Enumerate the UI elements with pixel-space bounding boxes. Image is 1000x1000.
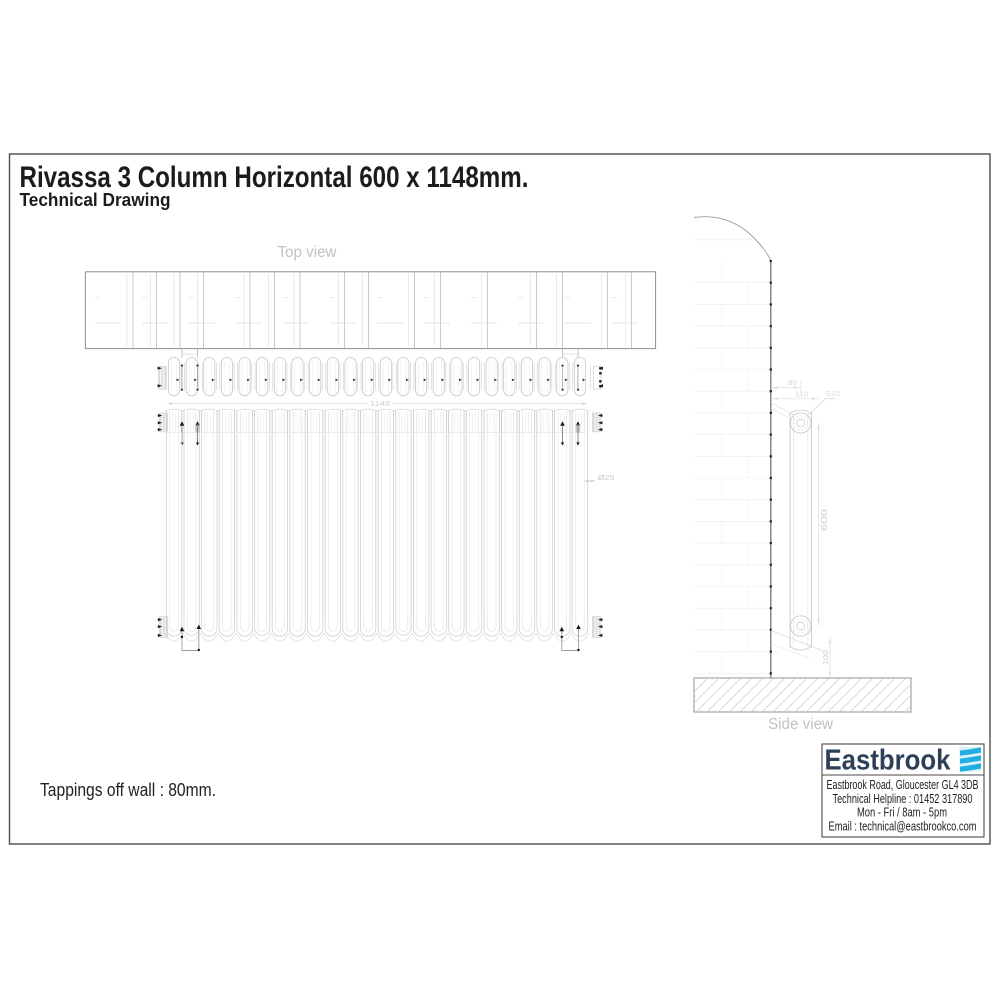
svg-text:Ø25: Ø25 [598, 473, 615, 482]
svg-text:100: 100 [823, 650, 830, 665]
svg-text:Tappings off wall : 80mm.: Tappings off wall : 80mm. [40, 779, 216, 800]
svg-text:Side view: Side view [768, 716, 834, 733]
svg-text:Mon - Fri / 8am - 5pm: Mon - Fri / 8am - 5pm [857, 806, 947, 820]
svg-text:Technical Helpline : 01452 317: Technical Helpline : 01452 317890 [833, 792, 973, 806]
svg-text:Eastbrook Road, Gloucester GL4: Eastbrook Road, Gloucester GL4 3DB [827, 778, 979, 792]
svg-text:110: 110 [795, 391, 808, 398]
svg-text:G1/2: G1/2 [826, 391, 840, 398]
svg-text:Top view: Top view [278, 244, 338, 261]
svg-text:80: 80 [788, 380, 797, 387]
svg-text:1148: 1148 [370, 399, 390, 408]
svg-text:Eastbrook: Eastbrook [825, 745, 952, 777]
svg-text:600: 600 [820, 508, 829, 531]
svg-text:Email : technical@eastbrookco.: Email : technical@eastbrookco.com [829, 820, 977, 834]
svg-text:Technical Drawing: Technical Drawing [20, 190, 171, 210]
